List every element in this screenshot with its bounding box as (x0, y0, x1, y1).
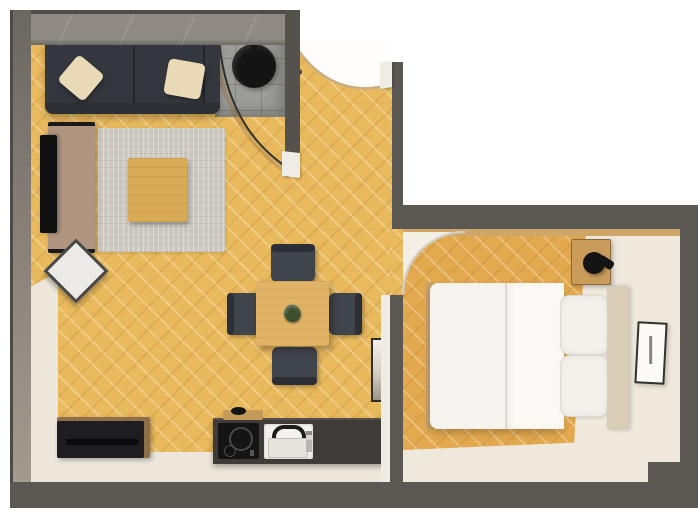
cooktop-ring-small (224, 445, 236, 457)
wall-entry-cap (380, 61, 392, 89)
sideboard-cabinet (57, 421, 144, 458)
sink-dispenser (306, 431, 312, 452)
shower-basin (232, 44, 276, 88)
dining-chair-bottom (272, 347, 317, 385)
wall-top (10, 10, 300, 45)
cutting-board-item (231, 407, 246, 415)
wall-divider-face (381, 295, 390, 482)
sofa-cushion-seam (133, 45, 135, 109)
cooktop (218, 423, 259, 459)
sofa-pillow-right (163, 58, 206, 100)
bedroom-doorway-threshold (390, 229, 403, 295)
wall-divider (390, 295, 403, 482)
wall-bottom (10, 482, 698, 508)
dining-chair-top (271, 244, 315, 282)
picture-frame (634, 321, 667, 384)
cooktop-control (250, 450, 254, 456)
wall-entry (392, 62, 403, 225)
sink-basin (268, 438, 308, 458)
wall-shower-stub-cap (282, 151, 300, 178)
bedroom-baseboard (403, 229, 680, 236)
headboard (607, 286, 629, 430)
bed-pillow-lower (560, 355, 609, 417)
dining-chair-right (329, 293, 362, 335)
sofa-front-edge (45, 103, 220, 114)
sink-unit (264, 424, 313, 459)
bed-sheet-fold (505, 283, 564, 429)
floor-plan (0, 0, 698, 518)
wall-right (680, 205, 698, 508)
kitchen-floor-left-strip (28, 272, 58, 482)
bed-pillow-upper (560, 295, 609, 355)
picture-frame-art (649, 336, 652, 364)
tv (40, 135, 57, 233)
wall-left (10, 10, 31, 508)
sideboard-slot (66, 439, 138, 445)
coffee-table (128, 158, 187, 222)
wall-bedroom-top (392, 205, 698, 229)
